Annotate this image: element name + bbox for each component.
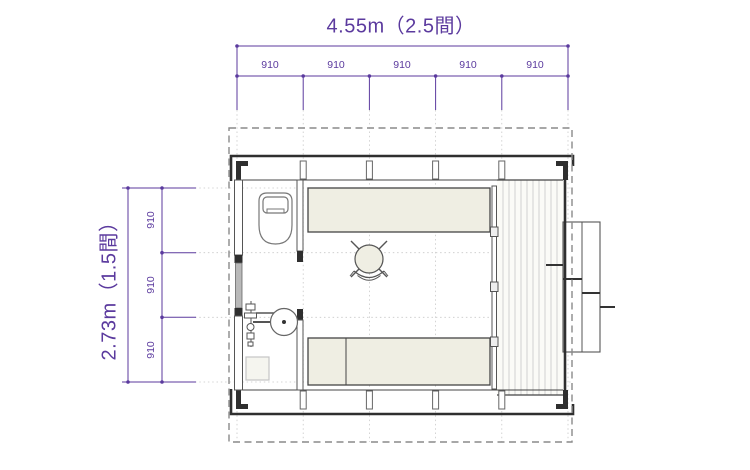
counter xyxy=(308,188,490,232)
height-segment-label: 910 xyxy=(145,341,157,359)
width-segment-label: 910 xyxy=(393,59,411,71)
mixer-fixture xyxy=(245,301,257,347)
washbasin xyxy=(245,301,298,380)
bed xyxy=(308,338,490,385)
height-segment-label: 910 xyxy=(145,211,157,229)
floor-drain-pan xyxy=(246,357,269,380)
width-segment-label: 910 xyxy=(261,59,279,71)
deck xyxy=(497,180,563,395)
height-segment-label: 910 xyxy=(145,276,157,294)
toilet xyxy=(259,193,292,244)
window xyxy=(236,263,243,308)
width-segment-label: 910 xyxy=(526,59,544,71)
sliding-door xyxy=(491,186,499,389)
round-table xyxy=(351,241,387,277)
floor-plan-canvas: 4.55m（2.5間） 910 910 910 910 910 2.73m（1.… xyxy=(0,0,750,470)
width-segment-label: 910 xyxy=(459,59,477,71)
width-segment-label: 910 xyxy=(327,59,345,71)
width-dimension-label: 4.55m（2.5間） xyxy=(327,10,476,39)
height-dimension-label: 2.73m（1.5間） xyxy=(93,212,122,361)
